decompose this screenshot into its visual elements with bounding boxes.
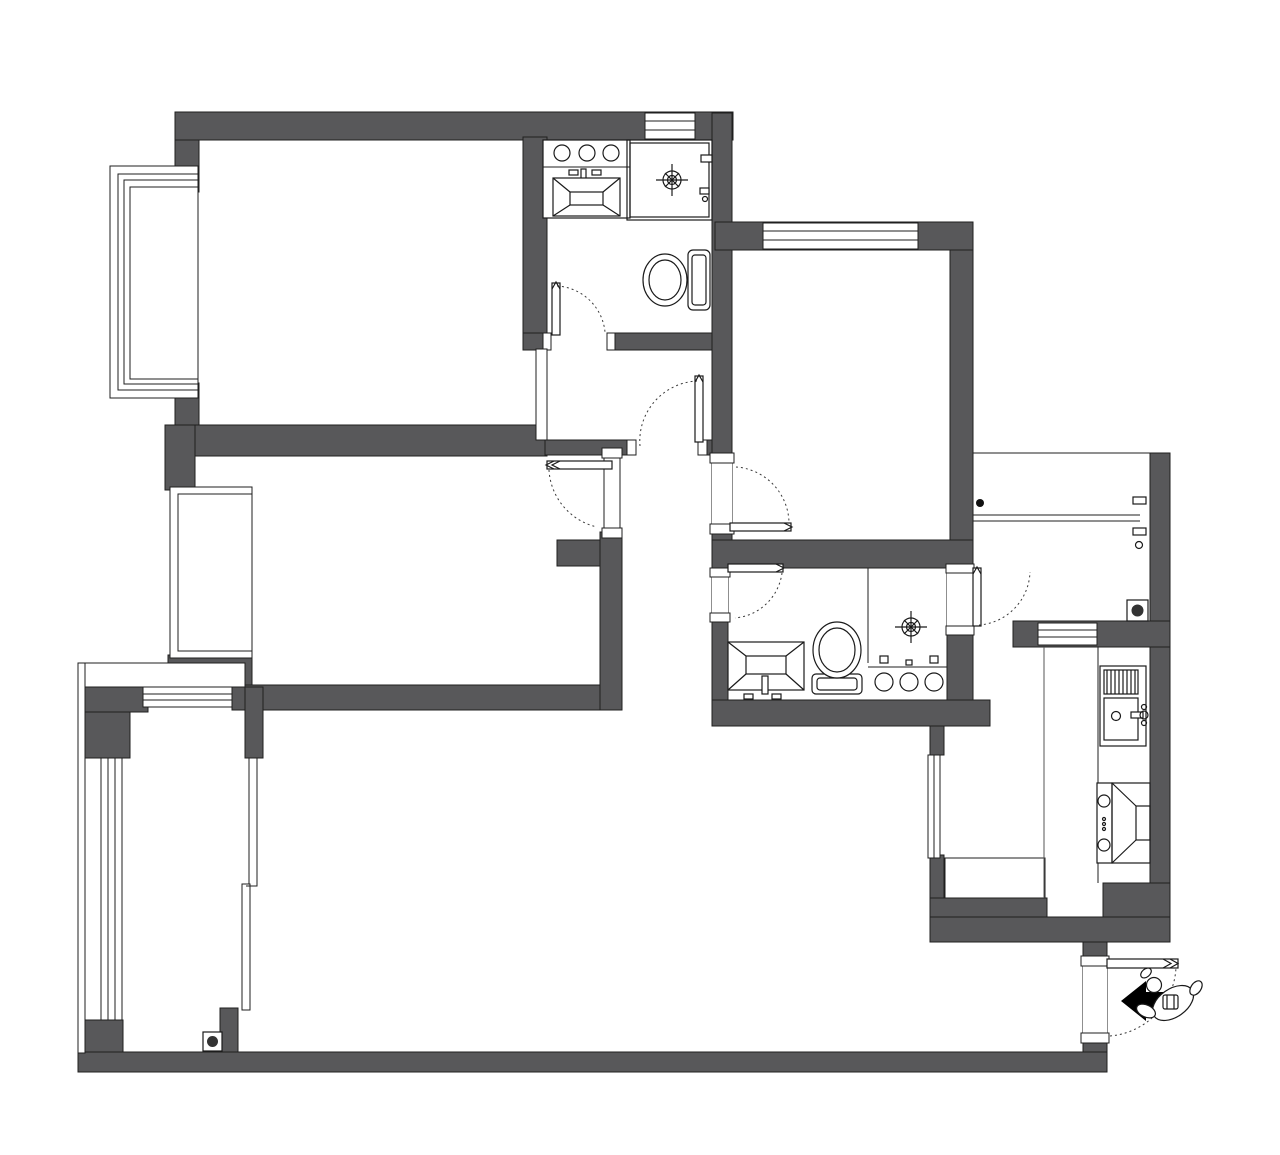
floor-plan-canvas: Apartment floor plan line drawing (no te… — [0, 0, 1280, 1155]
bay-window-icon — [170, 487, 252, 658]
bay-window-icon — [110, 166, 198, 398]
door-post — [627, 440, 636, 455]
clothes-drying-rack-icon — [973, 497, 1146, 549]
floor-drain-icon — [203, 1032, 222, 1051]
wall-stub-hall — [557, 540, 600, 566]
entrance-door-opening — [1083, 965, 1107, 1035]
door-post — [710, 453, 734, 463]
door-swing-icon — [640, 375, 703, 446]
door-post — [946, 564, 974, 573]
wall-se-corner — [1103, 883, 1170, 917]
door-post — [602, 448, 622, 458]
balcony2-door-opening — [947, 572, 973, 628]
sliding-door-icon — [242, 758, 257, 1010]
floor-plan-drawing: Apartment floor plan line drawing (no te… — [0, 0, 1280, 1155]
door-swing-icon — [973, 567, 1030, 626]
wall-livwin-top-stub — [930, 726, 944, 755]
range-hood-icon — [1112, 783, 1150, 863]
door-post — [946, 626, 974, 635]
entry-layer — [1121, 966, 1205, 1028]
door-post — [710, 613, 730, 622]
bedroom1-cased-opening — [536, 349, 547, 440]
washbasin-icon — [553, 178, 620, 216]
wall-bedroom2-right-lower — [600, 532, 622, 710]
door-post — [710, 568, 730, 577]
door-swing-icon — [730, 467, 792, 531]
door-post — [543, 333, 551, 350]
rack-dot — [976, 499, 984, 507]
wall-sliding-bottom-post — [220, 1008, 238, 1053]
casement-window-icon — [928, 755, 940, 858]
wall-right — [1150, 453, 1170, 883]
door-post — [602, 528, 622, 538]
wall-niche-icon — [945, 858, 1045, 898]
toilet-icon — [812, 622, 862, 694]
door-post — [1081, 1033, 1109, 1043]
wall-below-niche — [930, 898, 1047, 917]
bath2-door-opening — [712, 577, 728, 615]
kitchen-sink-icon — [1100, 666, 1148, 746]
door-swing-icon — [728, 564, 784, 618]
wall-bath2-bottom — [712, 700, 990, 726]
shower-area-icon — [627, 140, 712, 220]
casement-window-icon — [645, 113, 695, 139]
toilet-icon — [643, 250, 710, 310]
hall-door-opening — [635, 439, 699, 456]
wall-bedroom2-left-stub — [165, 425, 195, 490]
shower-floor-drain-icon — [895, 611, 927, 643]
wall-balcony1-corner-a — [78, 687, 148, 712]
shower-floor-drain-icon — [656, 164, 688, 196]
wall-balcony1-corner-b — [78, 712, 130, 758]
bedroom3-door-opening — [712, 462, 732, 526]
shower-area-icon — [868, 568, 947, 691]
floor-drain-icon — [1127, 600, 1148, 621]
door-post — [607, 333, 615, 350]
door-post — [1081, 956, 1109, 966]
wall-bedroom3-right — [950, 250, 973, 547]
wall-south-east-mass — [930, 917, 1170, 942]
wall-bottom — [78, 1052, 1107, 1072]
casement-window-icon — [1038, 623, 1097, 645]
casement-window-icon — [763, 223, 918, 249]
wall-sliding-top-post — [245, 687, 263, 758]
wall-bedroom2-bottom — [232, 685, 622, 710]
wall-livwin-bottom-stub — [930, 855, 944, 900]
door-swing-icon — [546, 461, 612, 527]
washbasin-icon — [728, 642, 804, 699]
gas-stove-icon — [1097, 783, 1112, 863]
wall-bedroom1-bottom — [175, 425, 547, 456]
door-swing-icon — [552, 282, 605, 335]
